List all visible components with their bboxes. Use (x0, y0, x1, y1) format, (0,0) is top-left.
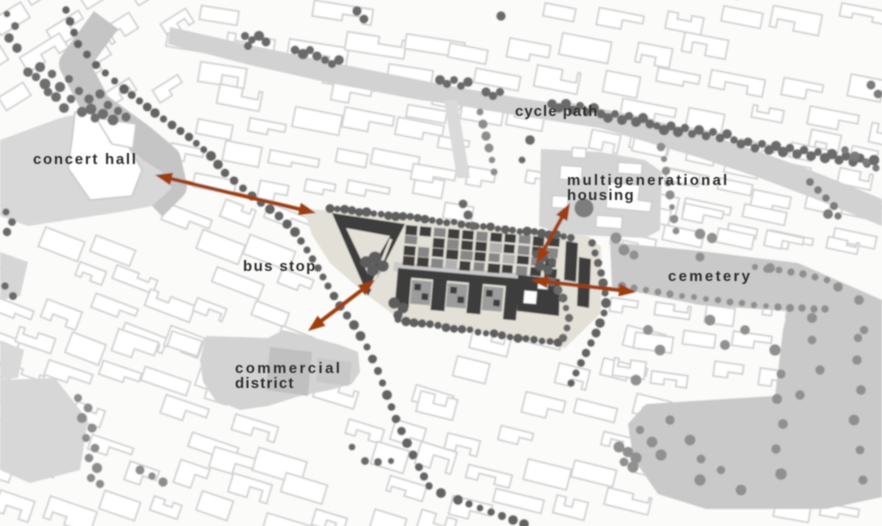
svg-text:district: district (235, 375, 295, 392)
svg-text:bus stop: bus stop (243, 258, 317, 275)
svg-text:cycle path: cycle path (515, 103, 598, 120)
svg-text:concert hall: concert hall (33, 151, 138, 168)
svg-text:cemetery: cemetery (668, 268, 752, 285)
svg-text:housing: housing (567, 187, 635, 204)
